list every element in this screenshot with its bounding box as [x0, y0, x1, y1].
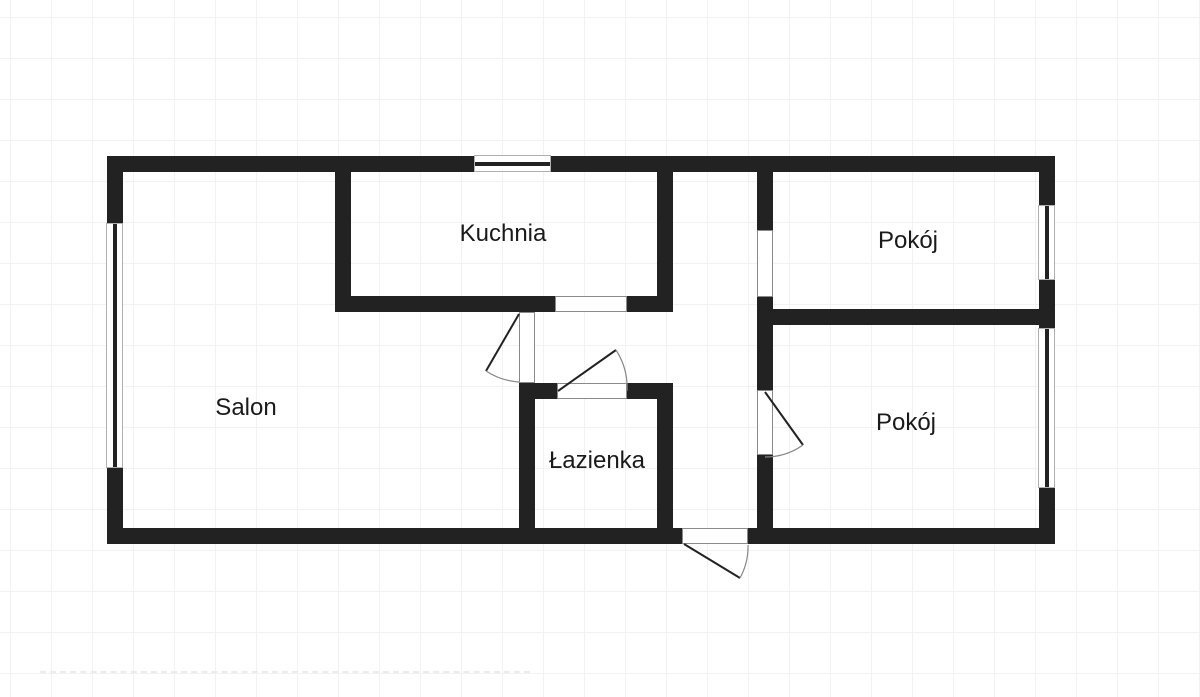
room-label-kuchnia: Kuchnia — [460, 220, 547, 248]
wall-outer-top — [107, 156, 1055, 172]
wall-lazienka-left — [519, 383, 535, 544]
room-label-pokoj-bottom: Pokój — [876, 409, 936, 437]
window-kuchnia-top — [474, 155, 551, 172]
window-glass-icon — [475, 162, 550, 166]
opening-kuchnia-passage — [555, 296, 627, 312]
room-label-pokoj-top: Pokój — [878, 227, 938, 255]
door-opening-pokoj-top — [757, 230, 773, 297]
wall-pokoj-divider — [757, 309, 1055, 325]
window-glass-icon — [1045, 329, 1049, 487]
wall-lazienka-right — [657, 383, 673, 544]
door-opening-lazienka — [557, 383, 627, 399]
watermark-remnant — [40, 671, 530, 673]
room-label-lazienka: Łazienka — [549, 447, 645, 475]
door-opening-salon — [519, 312, 535, 383]
room-label-salon: Salon — [215, 394, 276, 422]
window-glass-icon — [1045, 206, 1049, 279]
window-pokoj-top-right — [1038, 205, 1055, 280]
wall-outer-bottom — [107, 528, 1055, 544]
door-opening-entrance — [682, 528, 748, 544]
window-pokoj-bottom-right — [1038, 328, 1055, 488]
door-swings-layer — [0, 0, 1200, 697]
door-leaf-salon-icon — [486, 314, 519, 371]
wall-salon-kuchnia-divider — [335, 172, 351, 312]
wall-corridor-right — [757, 172, 773, 528]
wall-kuchnia-right — [657, 172, 673, 312]
door-arc-entrance-icon — [740, 545, 748, 578]
door-opening-pokoj-bottom — [757, 390, 773, 455]
window-salon-left — [106, 223, 123, 468]
door-leaf-entrance-icon — [684, 544, 740, 578]
window-glass-icon — [113, 224, 117, 467]
door-arc-salon-icon — [486, 371, 519, 382]
floor-plan: Salon Kuchnia Łazienka Pokój Pokój — [0, 0, 1200, 697]
